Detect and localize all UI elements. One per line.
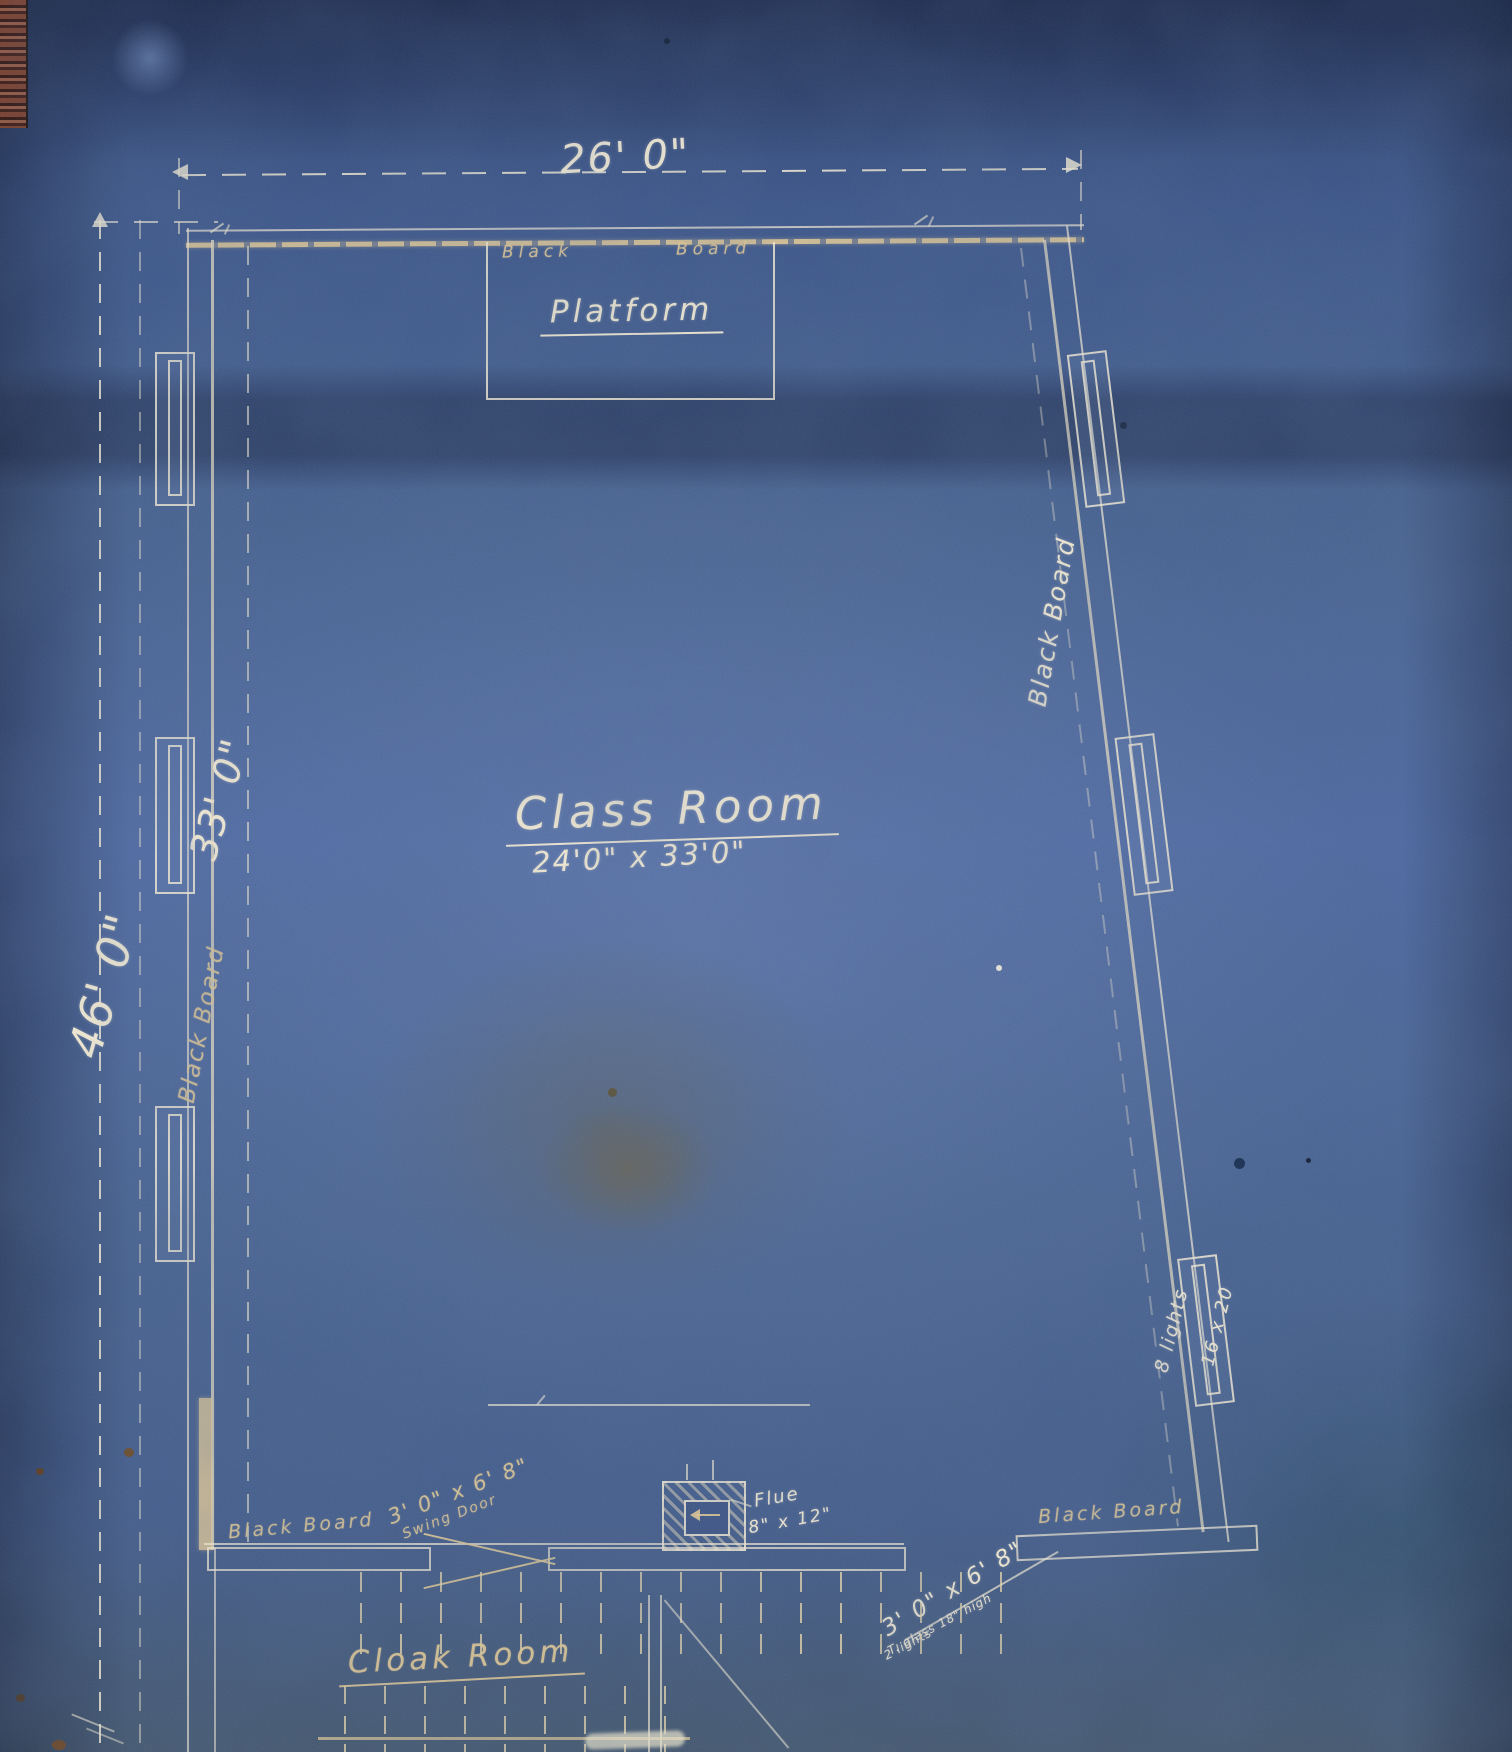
wall-left-inner: [211, 240, 214, 1550]
coat-hook-row: [360, 1603, 1010, 1623]
flue-tick: [686, 1464, 688, 1480]
classroom-label: Class Room: [504, 778, 839, 846]
corner-mark: [86, 1728, 124, 1745]
paper-stain: [124, 1448, 134, 1457]
blackboard-label-bottom-right: Black Board: [1037, 1497, 1185, 1528]
dimension-arrow-up-icon: [92, 212, 108, 227]
dimension-extension-right: [1080, 150, 1082, 230]
dimension-arrow-left-icon: [172, 164, 188, 180]
paper-stain: [608, 1088, 617, 1097]
dimension-label-left-height: 46' 0": [59, 907, 148, 1063]
blackboard-bottom-left-outline: [207, 1547, 431, 1571]
blackboard-word-black: Black: [502, 242, 573, 262]
book-binding-edge: [0, 0, 28, 128]
paper-stain: [1234, 1158, 1245, 1169]
coat-hook-row: [344, 1686, 674, 1704]
dimension-line-left-inner: [139, 220, 141, 1752]
blackboard-guide-line-left: [247, 246, 249, 1542]
window-glazing: [168, 1114, 182, 1252]
flue-label: Flue: [753, 1484, 802, 1511]
blackboard-label-left-wall: Black Board: [170, 917, 236, 1133]
wall-tick-mark: [210, 223, 224, 234]
coat-hook-row: [360, 1572, 1010, 1592]
wall-bottom-center-outline: [548, 1547, 906, 1571]
wall-left-lower: [214, 1548, 216, 1752]
window-glazing: [168, 360, 182, 496]
dimension-label-top-width: 26' 0": [559, 132, 692, 183]
blackboard-word-board: Board: [676, 239, 752, 259]
flue-tick: [712, 1460, 714, 1480]
coat-hook-row: [344, 1716, 674, 1734]
cloakroom-partition: [660, 1595, 662, 1752]
wall-top-outer: [186, 224, 1084, 231]
wall-bottom: [204, 1543, 904, 1545]
window-glazing: [168, 745, 182, 884]
window-glazing: [1128, 743, 1159, 885]
blackboard-label-bottom-left: Black Board: [227, 1510, 375, 1544]
window-left-middle: [155, 737, 195, 894]
dimension-tick-top-left: [94, 221, 218, 223]
paper-stain: [16, 1694, 25, 1702]
paper-stain: [1306, 1158, 1311, 1163]
window-glazing: [1081, 360, 1111, 497]
paper-stain: [996, 965, 1002, 971]
paper-stain: [664, 38, 670, 44]
paper-stain: [36, 1468, 44, 1475]
window-left-upper: [155, 352, 195, 506]
platform-label: Platform: [540, 292, 724, 336]
wall-left-corner-tan: [199, 1398, 212, 1550]
paper-stain: [52, 1740, 66, 1750]
paper-stain: [1120, 422, 1127, 429]
cloakroom-partition: [648, 1595, 650, 1752]
flue-arrow-icon: [690, 1509, 700, 1521]
wall-tick-mark: [914, 215, 928, 226]
blueprint-sheet: 26' 0" 46' 0" 33' 0" 8 lights 16 x 20 Bl: [0, 0, 1512, 1752]
